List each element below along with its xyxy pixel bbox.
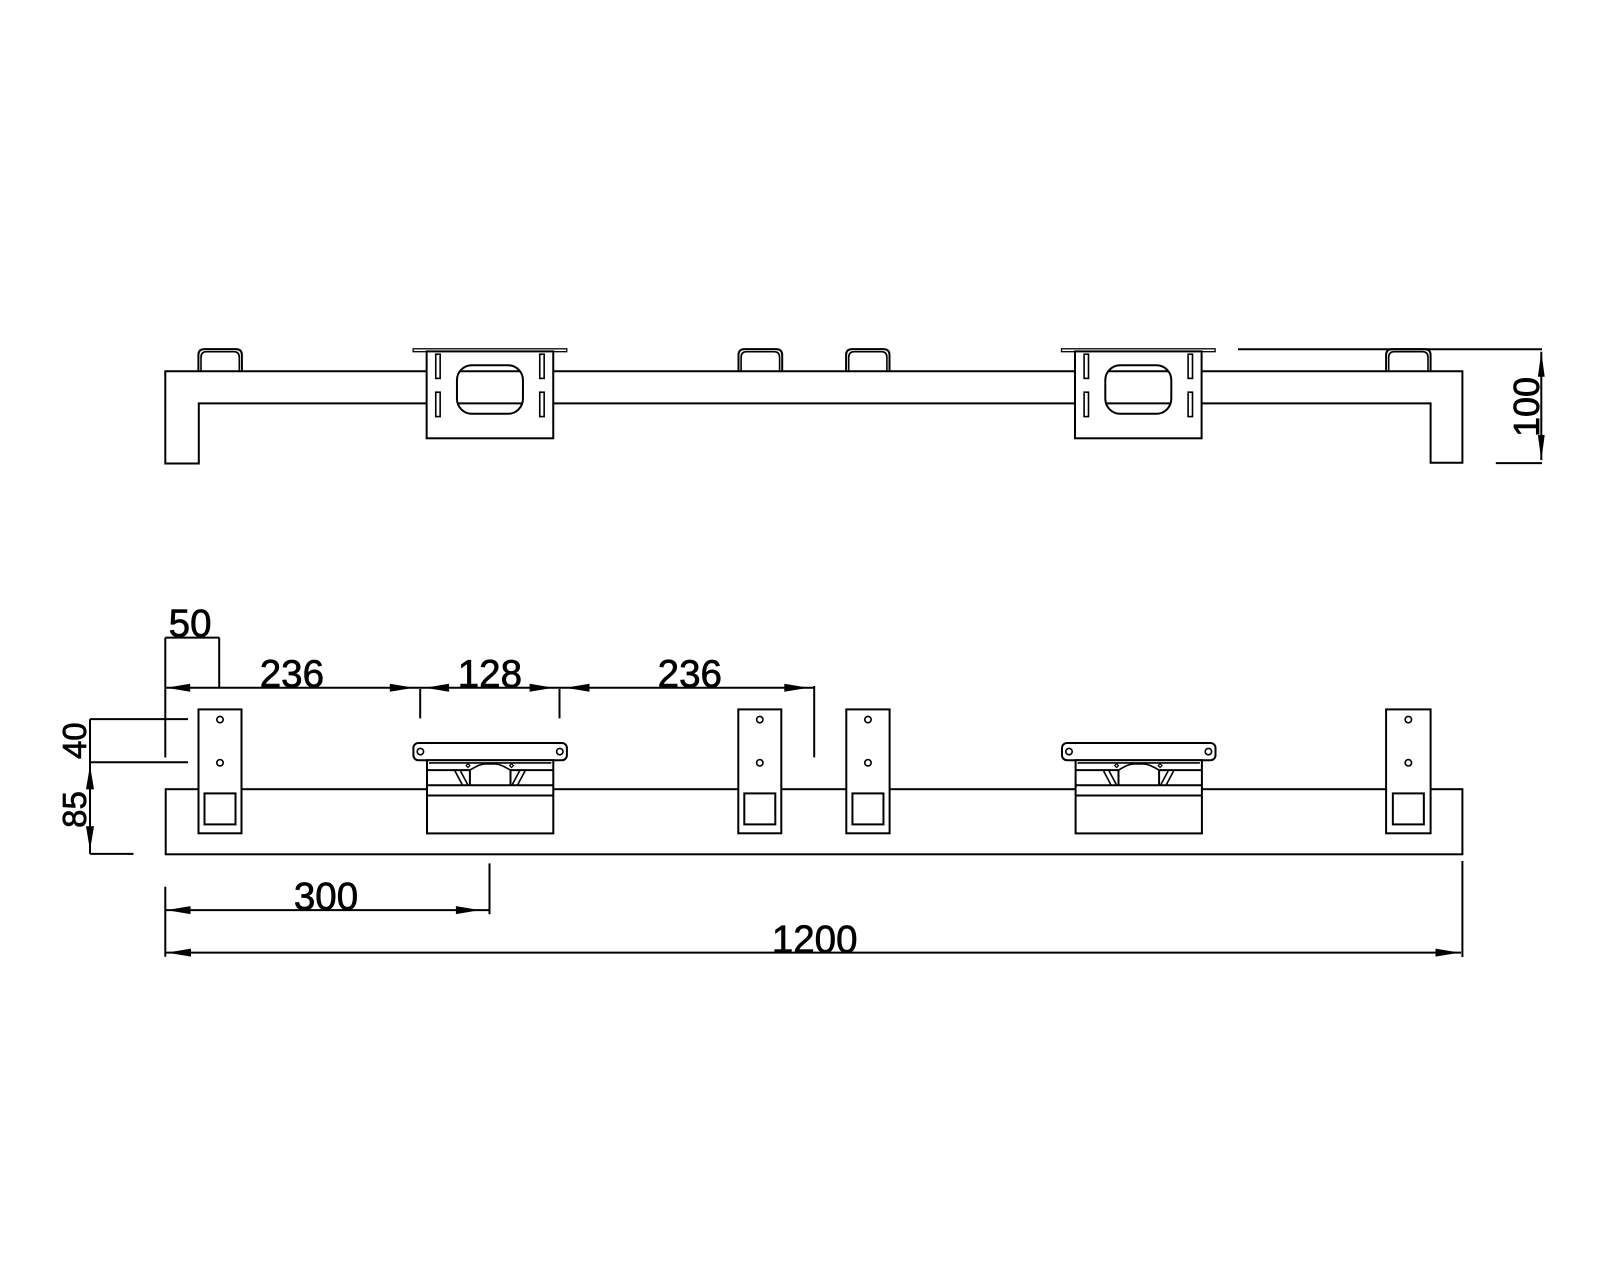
svg-text:236: 236 <box>260 653 324 696</box>
svg-text:85: 85 <box>56 791 93 828</box>
svg-text:236: 236 <box>658 653 722 696</box>
svg-text:40: 40 <box>56 722 93 759</box>
svg-text:50: 50 <box>169 603 212 646</box>
svg-text:100: 100 <box>1506 377 1547 437</box>
svg-text:1200: 1200 <box>772 919 858 962</box>
svg-text:300: 300 <box>294 876 358 919</box>
svg-text:128: 128 <box>458 653 522 696</box>
